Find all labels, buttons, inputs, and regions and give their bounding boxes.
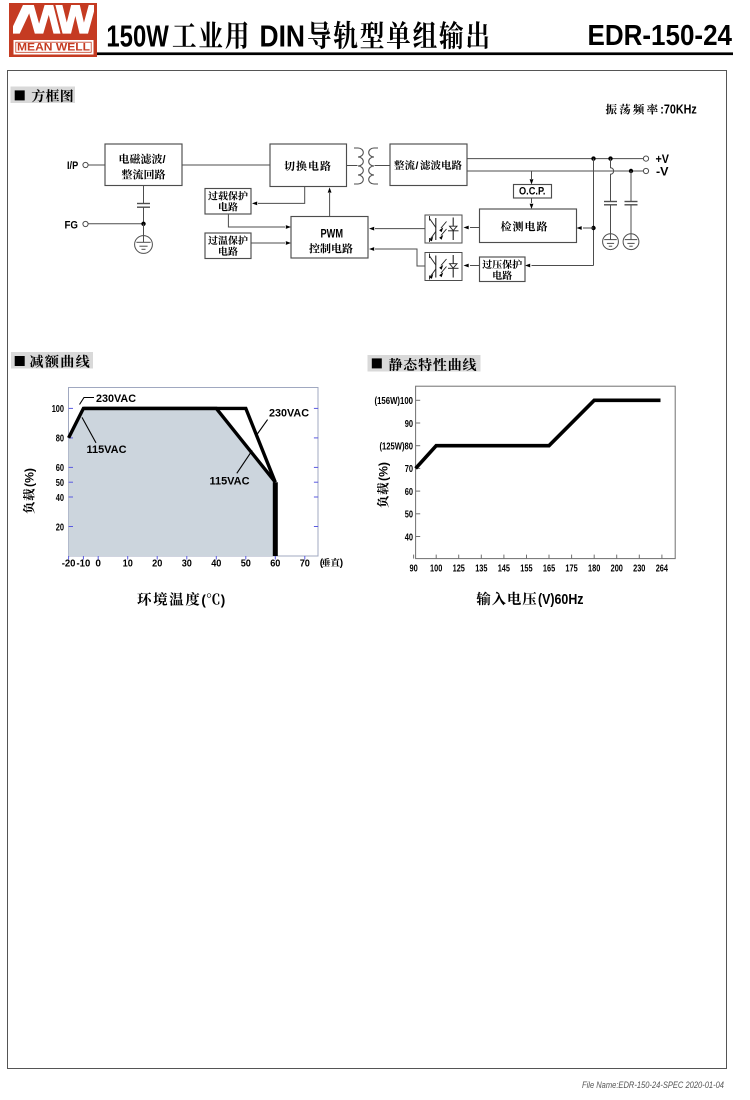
svg-text:PWM: PWM (321, 227, 344, 241)
svg-text:/: / (163, 154, 166, 166)
svg-text:165: 165 (543, 563, 555, 575)
svg-text:230: 230 (633, 563, 645, 575)
svg-text:90: 90 (405, 418, 413, 430)
svg-text:200: 200 (611, 563, 623, 575)
svg-text:DIN: DIN (260, 19, 306, 54)
svg-text:O.C.P.: O.C.P. (519, 186, 546, 198)
svg-text:20: 20 (56, 521, 64, 533)
svg-text:115VAC: 115VAC (87, 444, 127, 456)
svg-text:(V)60Hz: (V)60Hz (538, 591, 584, 608)
svg-text:155: 155 (520, 563, 532, 575)
svg-text:264: 264 (656, 563, 668, 575)
svg-text:/: / (416, 160, 419, 172)
svg-text:0: 0 (95, 559, 101, 570)
svg-text:80: 80 (56, 433, 64, 445)
svg-text:125: 125 (453, 563, 465, 575)
svg-text:70: 70 (300, 559, 311, 570)
svg-text:(125W)80: (125W)80 (380, 441, 414, 453)
svg-text:115VAC: 115VAC (210, 476, 250, 488)
svg-text:(: ( (201, 592, 206, 608)
svg-text:100: 100 (430, 563, 442, 575)
svg-text:60: 60 (405, 486, 413, 498)
svg-text:(156W)100: (156W)100 (375, 395, 414, 407)
svg-text:EDR-150-24: EDR-150-24 (588, 20, 733, 52)
svg-text:-10: -10 (77, 559, 91, 570)
svg-text:-20: -20 (62, 559, 76, 570)
svg-text:145: 145 (498, 563, 510, 575)
svg-text:20: 20 (152, 559, 163, 570)
svg-text:50: 50 (241, 559, 252, 570)
svg-text:): ) (221, 592, 226, 608)
svg-text:MEAN WELL: MEAN WELL (17, 42, 90, 54)
svg-text:230VAC: 230VAC (96, 393, 136, 405)
svg-text:40: 40 (211, 559, 222, 570)
svg-text:100: 100 (52, 403, 64, 415)
svg-text:150W: 150W (106, 19, 169, 54)
svg-text:40: 40 (405, 531, 413, 543)
svg-text:180: 180 (588, 563, 600, 575)
svg-text:File Name:EDR-150-24-SPEC 20: File Name:EDR-150-24-SPEC 2020-01-04 (582, 1080, 724, 1091)
svg-text:50: 50 (56, 477, 64, 489)
svg-text:-V: -V (656, 165, 669, 179)
svg-text:I/P: I/P (67, 160, 78, 172)
svg-text:(%): (%) (23, 468, 37, 487)
svg-text:135: 135 (475, 563, 487, 575)
svg-text:230VAC: 230VAC (269, 408, 309, 420)
svg-text:): ) (340, 558, 343, 569)
svg-text:60: 60 (56, 462, 64, 474)
svg-text:40: 40 (56, 492, 64, 504)
svg-text::70KHz: :70KHz (660, 103, 697, 117)
svg-text:70: 70 (405, 463, 413, 475)
svg-text:60: 60 (270, 559, 281, 570)
svg-text:30: 30 (182, 559, 193, 570)
svg-text:90: 90 (410, 563, 418, 575)
svg-text:FG: FG (65, 220, 79, 232)
svg-text:175: 175 (565, 563, 577, 575)
svg-text:50: 50 (405, 509, 413, 521)
svg-text:10: 10 (123, 559, 134, 570)
svg-text:(%): (%) (377, 462, 391, 481)
